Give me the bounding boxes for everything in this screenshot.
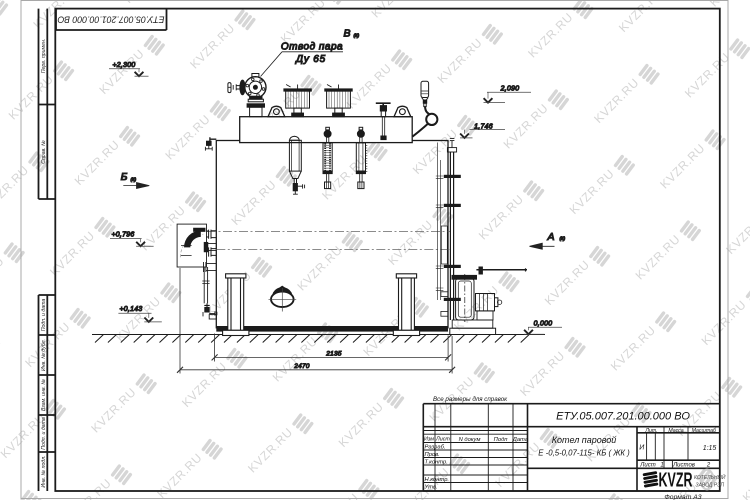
- svg-text:2135: 2135: [325, 350, 342, 357]
- svg-text:Инв. № дубл.: Инв. № дубл.: [41, 339, 47, 371]
- svg-text:Разраб.: Разраб.: [425, 445, 446, 451]
- svg-text:Лист: Лист: [435, 436, 450, 442]
- svg-text:ЗАВОД РЭП: ЗАВОД РЭП: [696, 482, 725, 488]
- svg-text:+0,143: +0,143: [119, 306, 142, 313]
- svg-text:1: 1: [660, 463, 663, 469]
- svg-text:Утв.: Утв.: [424, 484, 438, 490]
- svg-text:Н.контр.: Н.контр.: [425, 477, 450, 483]
- svg-text:+2,300: +2,300: [112, 62, 135, 69]
- svg-text:Масштаб: Масштаб: [692, 428, 717, 434]
- svg-text:Листов: Листов: [672, 463, 695, 469]
- svg-text:2470: 2470: [293, 363, 310, 370]
- svg-text:Все размеры для справок: Все размеры для справок: [433, 396, 508, 403]
- svg-text:А: А: [546, 231, 554, 243]
- svg-text:ЕТУ.05.007.201.00.000 ВО: ЕТУ.05.007.201.00.000 ВО: [556, 411, 690, 423]
- svg-text:Пров.: Пров.: [425, 452, 440, 458]
- svg-text:Масса: Масса: [668, 428, 683, 434]
- svg-text:Лист: Лист: [639, 463, 655, 469]
- svg-text:N докум: N докум: [459, 437, 481, 443]
- svg-text:Дата: Дата: [512, 437, 529, 443]
- svg-text:+0,796: +0,796: [111, 232, 134, 239]
- svg-text:(5): (5): [131, 177, 137, 182]
- svg-text:Лит.: Лит.: [644, 428, 657, 434]
- svg-text:Т.контр.: Т.контр.: [425, 460, 448, 466]
- svg-text:Отвод пара: Отвод пара: [281, 42, 343, 53]
- svg-text:1:15: 1:15: [703, 445, 717, 452]
- svg-text:KVZR: KVZR: [659, 470, 693, 492]
- svg-text:Формат А3: Формат А3: [664, 494, 701, 500]
- svg-text:2: 2: [706, 463, 711, 469]
- svg-text:Взам. инв. №: Взам. инв. №: [41, 379, 47, 411]
- svg-text:Котел паровой: Котел паровой: [552, 435, 617, 445]
- svg-text:Подп. и дата: Подп. и дата: [41, 417, 47, 450]
- svg-text:В: В: [343, 28, 350, 40]
- svg-text:(5): (5): [354, 33, 360, 38]
- svg-text:Справ. №: Справ. №: [41, 140, 47, 164]
- svg-text:2,090: 2,090: [500, 86, 520, 93]
- svg-text:Изм: Изм: [424, 436, 434, 442]
- svg-text:Б: Б: [121, 171, 128, 183]
- svg-text:0,000: 0,000: [534, 321, 553, 328]
- svg-text:Ду 65: Ду 65: [295, 54, 326, 65]
- svg-text:Подп: Подп: [494, 437, 509, 443]
- svg-text:Перв. примен.: Перв. примен.: [41, 39, 47, 73]
- svg-text:Е -0,5-0,07-115- КБ ( ЖК ): Е -0,5-0,07-115- КБ ( ЖК ): [538, 449, 630, 458]
- svg-text:Инв. № подл.: Инв. № подл.: [41, 455, 47, 487]
- svg-text:Подп. и дата: Подп. и дата: [41, 299, 47, 332]
- svg-text:КОТЕЛЬНЫЙ: КОТЕЛЬНЫЙ: [694, 473, 726, 481]
- svg-text:ЕТУ.05.007.201.00.000 ВО: ЕТУ.05.007.201.00.000 ВО: [57, 15, 164, 25]
- svg-text:(5): (5): [560, 236, 566, 241]
